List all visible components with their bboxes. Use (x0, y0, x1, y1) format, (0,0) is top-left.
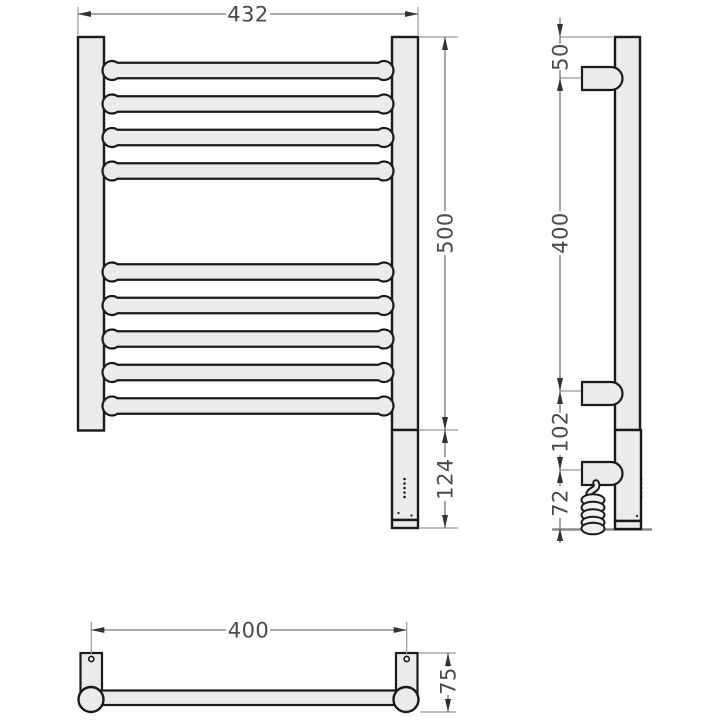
towel-rail-technical-drawing: 432 500 124 (0, 0, 720, 720)
towel-bar (103, 397, 394, 416)
dim-bottom-span: 400 (91, 619, 406, 656)
dim-arrow (405, 11, 418, 17)
bottom-view: 400 75 (79, 619, 461, 713)
towel-bar (103, 363, 394, 382)
power-cable-coil (582, 483, 605, 534)
side-view: 50 400 102 72 (549, 18, 653, 543)
towel-bar (103, 296, 394, 315)
dim-arrow (557, 457, 563, 470)
front-view: 432 500 124 (78, 3, 458, 529)
towel-bar (103, 128, 394, 147)
dim-arrow (394, 627, 407, 633)
dim-arrow (557, 391, 563, 404)
left-post-section (79, 687, 104, 712)
dim-arrow (442, 515, 448, 528)
side-post (615, 37, 640, 430)
drawing-page: 432 500 124 (0, 0, 720, 720)
side-heater-end-cap (615, 521, 641, 529)
dim-front-element-label: 124 (434, 458, 458, 500)
dim-front-height: 500 124 (420, 37, 458, 528)
dim-front-height-label: 500 (434, 212, 458, 254)
dim-arrow (557, 378, 563, 391)
towel-bar (103, 330, 394, 349)
front-left-post (78, 37, 104, 431)
dim-side-bottom-label: 72 (549, 489, 573, 517)
dim-arrow (445, 699, 451, 712)
dim-front-width-label: 432 (227, 3, 269, 27)
front-heater-end-cap (392, 520, 418, 528)
right-mounting-hole (404, 656, 409, 661)
housing-screw-dot (410, 514, 412, 516)
towel-bar (103, 61, 394, 80)
front-heater-housing (392, 430, 418, 520)
bottom-crossbar (95, 691, 402, 706)
dim-front-width: 432 (78, 3, 418, 36)
towel-bar (103, 95, 394, 114)
lower-wall-bracket (582, 382, 623, 405)
dim-side-mid-label: 102 (549, 411, 573, 453)
towel-bars (103, 61, 394, 416)
dim-bottom-depth: 75 (419, 653, 461, 712)
dim-arrow (445, 653, 451, 666)
dim-arrow (78, 11, 91, 17)
housing-screw-dot (397, 512, 399, 514)
dim-arrow (442, 430, 448, 443)
towel-bar (103, 263, 394, 282)
front-right-post (392, 37, 418, 430)
dim-arrow (91, 627, 104, 633)
dim-arrow (557, 24, 563, 37)
dim-arrow (557, 470, 563, 483)
dim-arrow (442, 37, 448, 50)
left-mounting-hole (89, 656, 94, 661)
towel-bar (103, 162, 394, 181)
dim-arrow (442, 417, 448, 430)
dim-bottom-span-label: 400 (228, 619, 270, 643)
cable-outlet-box (582, 462, 623, 485)
upper-wall-bracket (582, 67, 623, 90)
dim-bottom-depth-label: 75 (437, 667, 461, 695)
dim-arrow (557, 78, 563, 91)
dim-side-top-label: 50 (549, 43, 573, 71)
dim-side-span-label: 400 (549, 212, 573, 254)
right-post-section (394, 687, 419, 712)
